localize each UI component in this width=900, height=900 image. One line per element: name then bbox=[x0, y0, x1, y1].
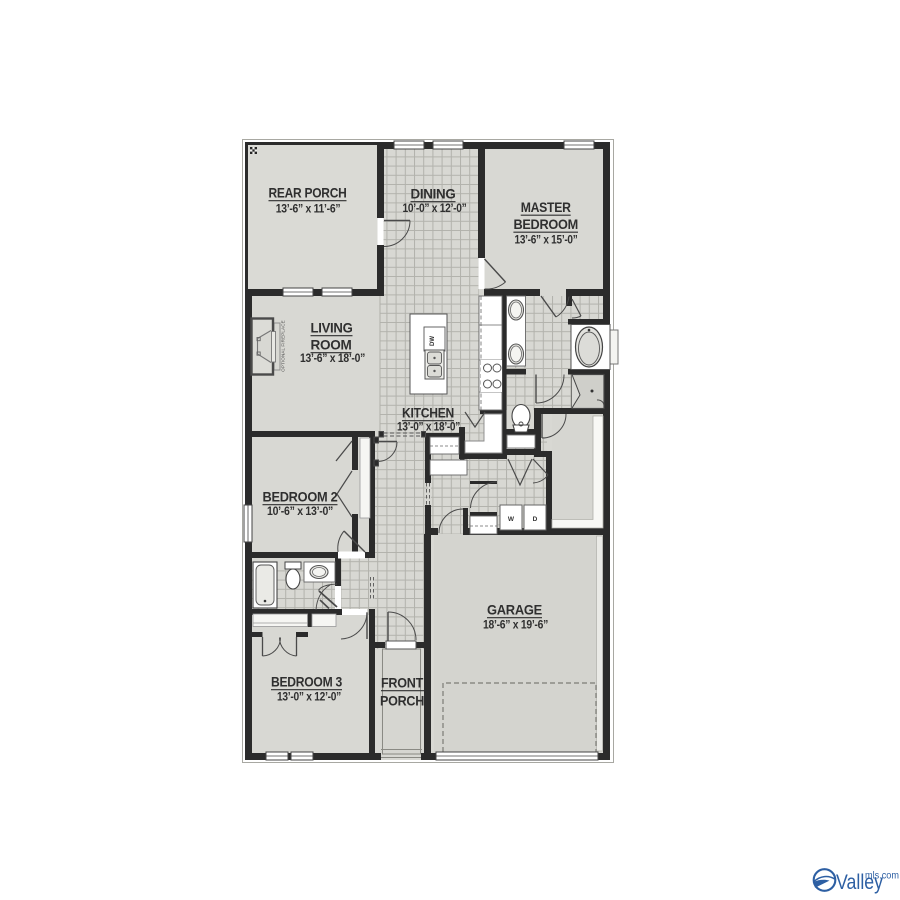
svg-text:PORCH: PORCH bbox=[380, 693, 424, 709]
svg-text:MASTER: MASTER bbox=[521, 199, 571, 215]
svg-text:LIVING: LIVING bbox=[311, 320, 353, 336]
svg-text:13’-6” x 11’-6”: 13’-6” x 11’-6” bbox=[276, 204, 341, 216]
svg-text:GARAGE: GARAGE bbox=[487, 602, 542, 618]
svg-text:REAR PORCH: REAR PORCH bbox=[269, 185, 347, 201]
svg-text:BEDROOM 2: BEDROOM 2 bbox=[263, 489, 338, 505]
svg-text:10’-0” x 12’-0”: 10’-0” x 12’-0” bbox=[403, 203, 467, 215]
svg-text:10’-6” x 13’-0”: 10’-6” x 13’-0” bbox=[267, 506, 333, 518]
svg-text:W: W bbox=[508, 516, 515, 523]
svg-text:FRONT: FRONT bbox=[381, 675, 424, 691]
svg-text:DINING: DINING bbox=[411, 186, 456, 202]
svg-text:mls.com: mls.com bbox=[865, 870, 899, 882]
svg-text:18’-6” x 19’-6”: 18’-6” x 19’-6” bbox=[483, 620, 548, 632]
svg-text:BEDROOM: BEDROOM bbox=[513, 216, 578, 232]
svg-text:BEDROOM 3: BEDROOM 3 bbox=[271, 674, 342, 690]
svg-text:13’-0” x 12’-0”: 13’-0” x 12’-0” bbox=[277, 692, 341, 704]
svg-text:D: D bbox=[533, 516, 538, 523]
svg-text:DW: DW bbox=[430, 336, 436, 346]
svg-text:ROOM: ROOM bbox=[311, 337, 352, 353]
svg-text:OPTIONAL FIREPLACE: OPTIONAL FIREPLACE bbox=[281, 320, 286, 372]
svg-text:13’-0” x 18’-0”: 13’-0” x 18’-0” bbox=[397, 422, 460, 434]
svg-text:13’-6” x 18’-0”: 13’-6” x 18’-0” bbox=[300, 353, 365, 365]
svg-text:KITCHEN: KITCHEN bbox=[402, 405, 454, 421]
svg-text:13’-6” x 15’-0”: 13’-6” x 15’-0” bbox=[515, 235, 578, 247]
